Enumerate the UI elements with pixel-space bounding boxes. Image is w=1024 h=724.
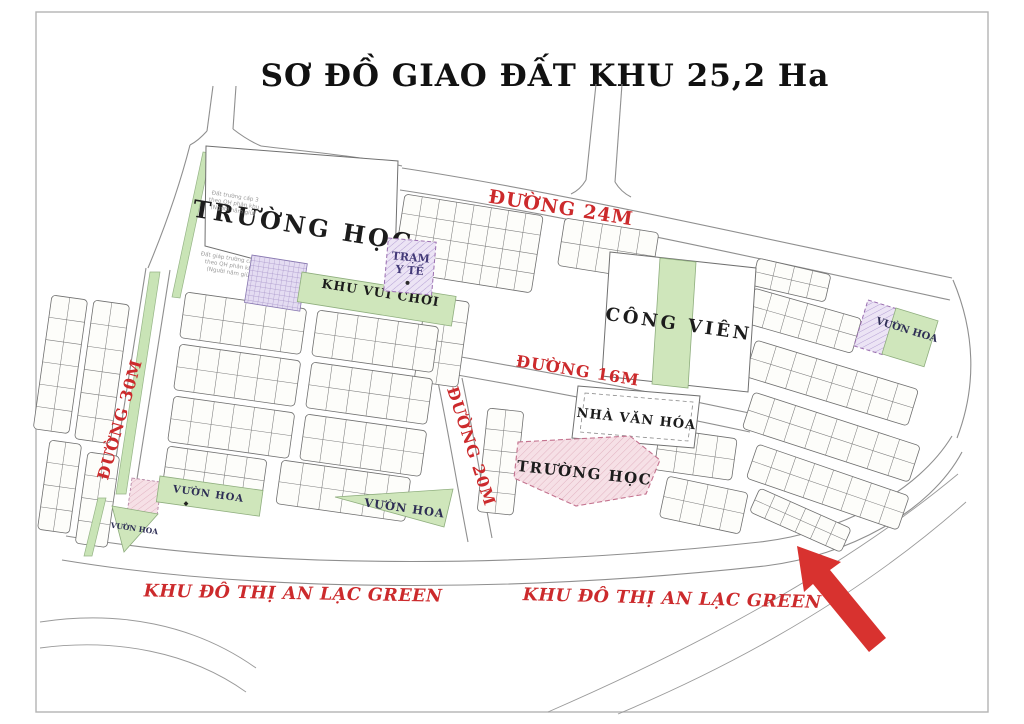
lot-strip <box>306 362 433 425</box>
health-station-block: TRẠM Y TẾ <box>384 238 436 295</box>
road-line <box>571 180 586 194</box>
reserved-parcel-block <box>244 255 307 311</box>
district-label-left: KHU ĐÔ THỊ AN LẠC GREEN <box>143 580 444 606</box>
page-title: SƠ ĐỒ GIAO ĐẤT KHU 25,2 Ha <box>261 52 830 94</box>
garden-block-2: VƯỜN HOA <box>109 506 159 552</box>
site-plan-map: SƠ ĐỒ GIAO ĐẤT KHU 25,2 Ha <box>0 0 1024 724</box>
garden-block-4: VƯỜN HOA <box>854 300 939 367</box>
road-line <box>615 84 622 182</box>
lot-strip <box>174 344 301 407</box>
lot-strip <box>659 476 748 534</box>
road-line <box>190 131 207 145</box>
road-line <box>233 129 261 146</box>
road-line <box>615 182 631 197</box>
road-line <box>40 618 256 668</box>
road-line <box>40 645 246 692</box>
lot-strip <box>37 440 81 534</box>
land-allocation-map-page: SƠ ĐỒ GIAO ĐẤT KHU 25,2 Ha <box>0 0 1024 724</box>
district-label-right: KHU ĐÔ THỊ AN LẠC GREEN <box>522 584 823 613</box>
road-line <box>233 86 236 129</box>
road-line <box>207 86 213 131</box>
road-line <box>586 84 596 180</box>
road-right-edge <box>953 280 971 438</box>
